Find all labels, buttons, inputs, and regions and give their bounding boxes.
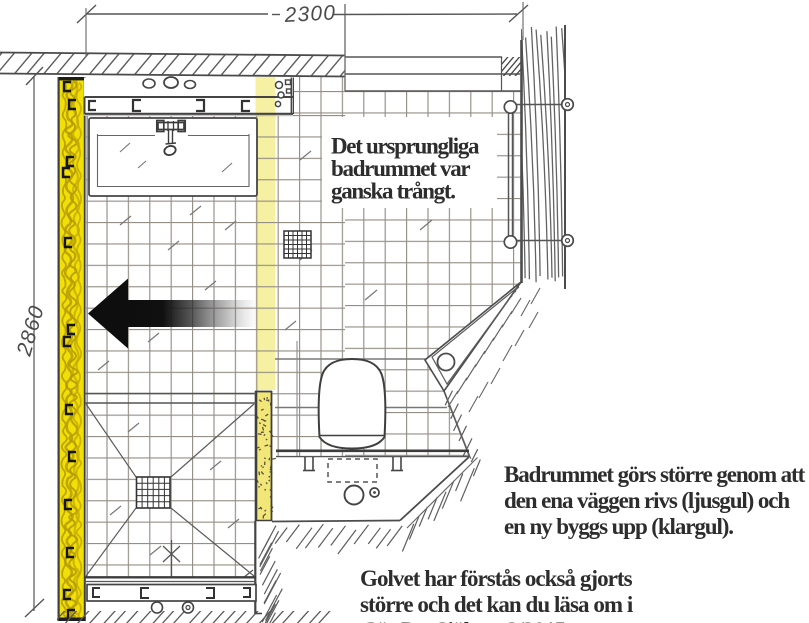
svg-text:en ny byggs upp (klargul).: en ny byggs upp (klargul).: [504, 514, 733, 539]
svg-text:den ena väggen rivs (ljusgul): den ena väggen rivs (ljusgul) och: [504, 488, 790, 513]
svg-text:2300: 2300: [283, 1, 337, 27]
svg-text:ganska trångt.: ganska trångt.: [331, 179, 455, 204]
svg-text:Golvet har förstås också gjort: Golvet har förstås också gjorts: [360, 566, 633, 591]
svg-text:badrummet var: badrummet var: [331, 156, 470, 181]
svg-text:Gör Det Själv nr 2/2015: Gör Det Själv nr 2/2015: [360, 618, 566, 623]
svg-text:Badrummet görs större genom at: Badrummet görs större genom att: [504, 462, 806, 487]
svg-text:större och det kan du läsa om: större och det kan du läsa om i: [360, 592, 634, 617]
svg-text:Det ursprungliga: Det ursprungliga: [331, 134, 480, 159]
